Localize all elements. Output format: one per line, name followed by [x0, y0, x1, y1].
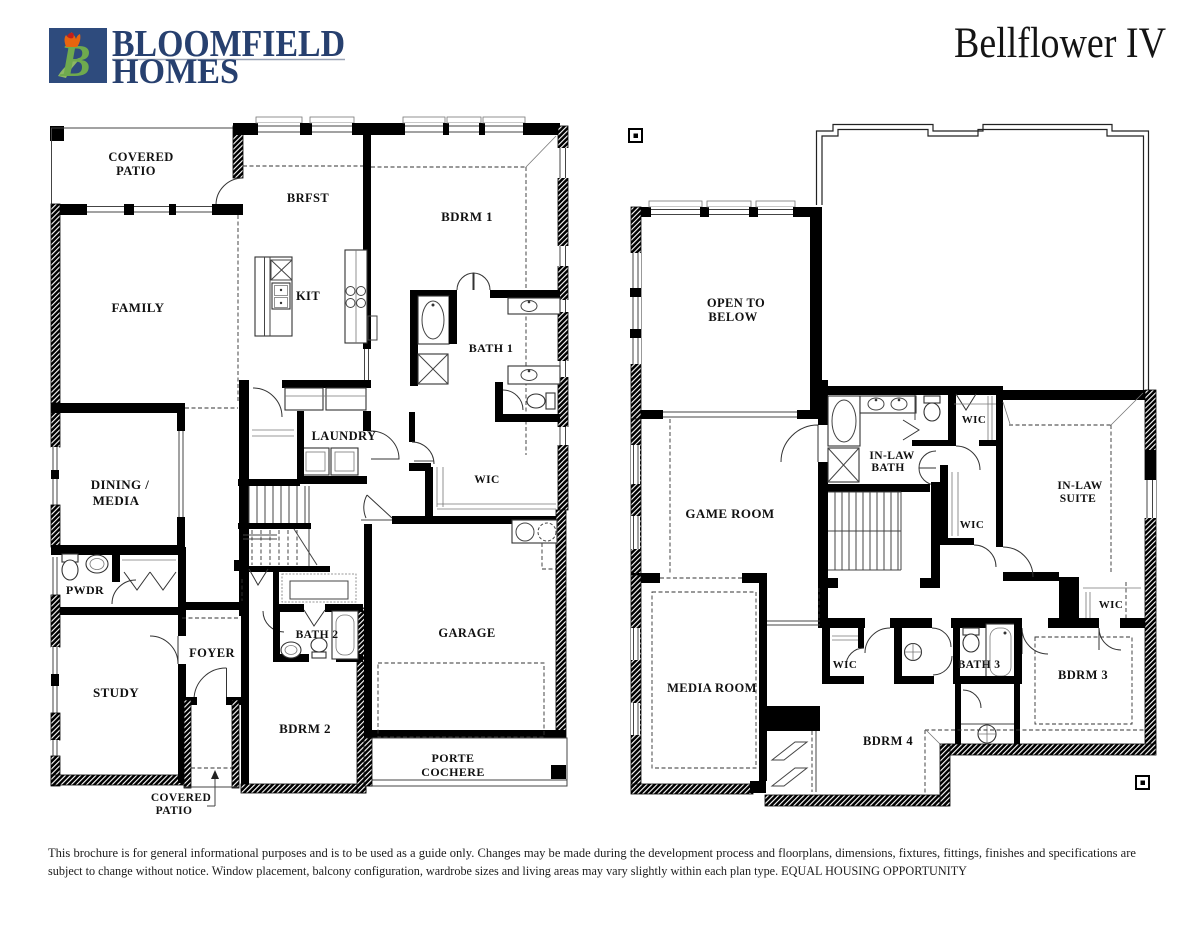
- svg-text:BDRM 1: BDRM 1: [441, 209, 493, 224]
- svg-text:GARAGE: GARAGE: [438, 626, 495, 640]
- svg-text:PATIO: PATIO: [156, 805, 193, 817]
- svg-text:PATIO: PATIO: [116, 164, 156, 178]
- svg-text:IN-LAW: IN-LAW: [1057, 480, 1102, 492]
- svg-text:STUDY: STUDY: [93, 685, 139, 700]
- svg-text:WIC: WIC: [962, 414, 986, 426]
- svg-text:This brochure is for general i: This brochure is for general information…: [48, 846, 1136, 860]
- svg-text:BATH 3: BATH 3: [958, 659, 1001, 671]
- svg-text:WIC: WIC: [474, 474, 499, 486]
- svg-text:OPEN TO: OPEN TO: [707, 296, 765, 310]
- svg-text:WIC: WIC: [960, 519, 984, 531]
- svg-text:BATH: BATH: [871, 462, 904, 474]
- svg-text:IN-LAW: IN-LAW: [869, 450, 914, 462]
- svg-text:MEDIA ROOM: MEDIA ROOM: [667, 681, 757, 695]
- svg-text:DINING /: DINING /: [91, 477, 149, 492]
- svg-text:PWDR: PWDR: [66, 583, 104, 597]
- svg-text:BATH 2: BATH 2: [296, 629, 339, 641]
- svg-text:COVERED: COVERED: [151, 792, 211, 804]
- svg-text:Bellflower IV: Bellflower IV: [954, 20, 1166, 67]
- svg-text:COVERED: COVERED: [108, 150, 173, 164]
- svg-text:MEDIA: MEDIA: [93, 493, 140, 508]
- svg-text:WIC: WIC: [1099, 599, 1123, 611]
- svg-text:KIT: KIT: [296, 289, 320, 303]
- svg-text:BDRM 2: BDRM 2: [279, 721, 331, 736]
- svg-text:BDRM 3: BDRM 3: [1058, 668, 1108, 682]
- svg-text:WIC: WIC: [833, 659, 857, 671]
- svg-text:BDRM 4: BDRM 4: [863, 734, 913, 748]
- svg-text:BATH 1: BATH 1: [469, 341, 514, 355]
- svg-text:BRFST: BRFST: [287, 191, 330, 205]
- svg-text:subject to change without noti: subject to change without notice. Window…: [48, 864, 967, 878]
- svg-text:FOYER: FOYER: [189, 646, 235, 660]
- svg-text:GAME ROOM: GAME ROOM: [685, 506, 774, 521]
- svg-text:SUITE: SUITE: [1060, 493, 1097, 505]
- svg-text:HOMES: HOMES: [112, 51, 239, 91]
- svg-text:BELOW: BELOW: [708, 310, 757, 324]
- svg-text:COCHERE: COCHERE: [421, 765, 484, 779]
- svg-text:PORTE: PORTE: [432, 751, 475, 765]
- svg-text:FAMILY: FAMILY: [112, 300, 165, 315]
- svg-text:LAUNDRY: LAUNDRY: [312, 429, 377, 443]
